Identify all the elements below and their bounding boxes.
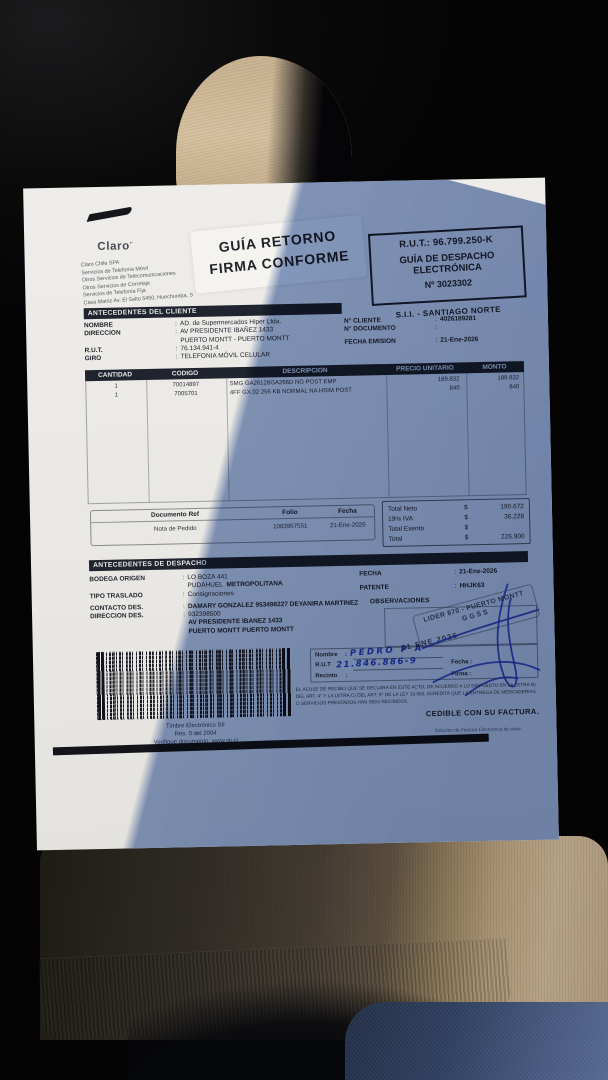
items-table-body: 1 70014897 SMG GA26128GA266D NG POST EMP…: [85, 372, 526, 504]
col-precio-unitario: PRECIO UNITARIO: [385, 364, 465, 373]
value: 21-Ene-2026: [440, 336, 478, 345]
label: FECHA EMISION: [344, 337, 432, 347]
spacer: [172, 337, 180, 345]
reference-box: Documento Ref Folio Fecha Nota de Pedido…: [90, 504, 376, 546]
folio-header: Folio: [259, 508, 321, 516]
pdf417-barcode-icon: [96, 648, 293, 720]
pen-mark-icon: [86, 207, 132, 222]
label: Total: [388, 533, 458, 544]
photo-scene: Claro⌐ Claro Chile SPA Servicios de Tele…: [0, 0, 608, 1080]
client-info: NOMBRE:AD. de Supermercados Hiper Ltda. …: [84, 317, 350, 364]
col-monto: MONTO: [465, 363, 524, 371]
value: 226.900: [474, 532, 524, 543]
rut-box: R.U.T.: 96.799.250-K GUÍA DE DESPACHOELE…: [368, 225, 527, 306]
folio-value: 1083957551: [259, 522, 321, 530]
spacer: [180, 620, 188, 628]
value: TELEFONIA MÓVIL CELULAR: [181, 352, 270, 362]
paper-document: Claro⌐ Claro Chile SPA Servicios de Tele…: [23, 178, 559, 851]
ref-doc-value: Nota de Pedido: [91, 523, 259, 534]
claro-logo: Claro⌐: [97, 240, 134, 253]
document-type: GUÍA DE DESPACHOELECTRÓNICA: [371, 248, 523, 278]
descripcion: 4FF GX.02 256 KB NORMAL NA HSIM POST: [226, 386, 385, 398]
dispatch-info: BODEGA ORIGEN:LO BOZA 441 PUDAHUEL METRO…: [89, 570, 390, 638]
ref-doc-header: Documento Ref: [91, 510, 259, 521]
col-cantidad: CANTIDAD: [85, 371, 145, 379]
value: Consignaciones: [188, 590, 234, 599]
cedible-text: CEDIBLE CON SU FACTURA.: [384, 707, 539, 719]
colon: :: [345, 673, 347, 679]
value: 21-Ene-2026: [459, 568, 497, 577]
colon: :: [179, 574, 187, 582]
return-sticker: GUÍA RETORNO FIRMA CONFORME: [190, 215, 367, 294]
codigo: 7005701: [146, 389, 226, 400]
denim-jeans: [345, 1002, 608, 1080]
value: PUERTO MONTT PUERTO MONTT: [188, 626, 294, 637]
comuna: PUDAHUEL: [187, 582, 223, 590]
colon: :: [180, 611, 188, 619]
spacer: [179, 582, 187, 590]
totals-box: Total Neto$190.672 19% IVA$36.228 Total …: [382, 498, 531, 547]
colon: :: [432, 316, 440, 324]
doc-type-line2: ELECTRÓNICA: [413, 262, 482, 277]
colon: :: [173, 353, 181, 361]
client-doc-info: N° CLIENTE:4026189281 N° DOCUMENTO: FECH…: [344, 314, 530, 347]
monto: 840: [465, 383, 524, 393]
precio-unitario: 840: [385, 384, 465, 395]
footer-note: Solución de Factura Electrónica de www: [435, 727, 555, 735]
colon: :: [432, 324, 440, 332]
total-row: Total$226.900: [388, 532, 524, 545]
colon: :: [180, 603, 188, 611]
claro-logo-accent: ⌐: [130, 240, 134, 246]
colon: :: [180, 591, 188, 599]
col-codigo: CODIGO: [145, 369, 225, 378]
colon: :: [172, 345, 180, 353]
colon: :: [432, 336, 440, 344]
colon: :: [345, 652, 347, 658]
colon: :: [172, 320, 180, 328]
fecha-value: 21-Ene-2026: [321, 521, 374, 529]
region: METROPOLITANA: [226, 580, 282, 588]
cantidad: 1: [86, 391, 146, 401]
spacer: [90, 628, 180, 638]
currency-sign: $: [458, 513, 474, 523]
currency-sign: $: [458, 503, 474, 513]
rut-label: R.U.T: [315, 662, 331, 668]
currency-sign: $: [458, 523, 474, 533]
spacer: [180, 628, 188, 636]
colon: :: [451, 568, 459, 576]
value: 4026189281: [440, 315, 476, 324]
recinto-label: Recinto: [315, 673, 337, 679]
label: GIRO: [85, 354, 173, 364]
currency-sign: $: [458, 533, 474, 543]
colon: :: [172, 329, 180, 337]
fecha-header: Fecha: [321, 507, 374, 515]
nombre-label: Nombre: [315, 652, 338, 658]
claro-logo-text: Claro: [97, 240, 130, 253]
